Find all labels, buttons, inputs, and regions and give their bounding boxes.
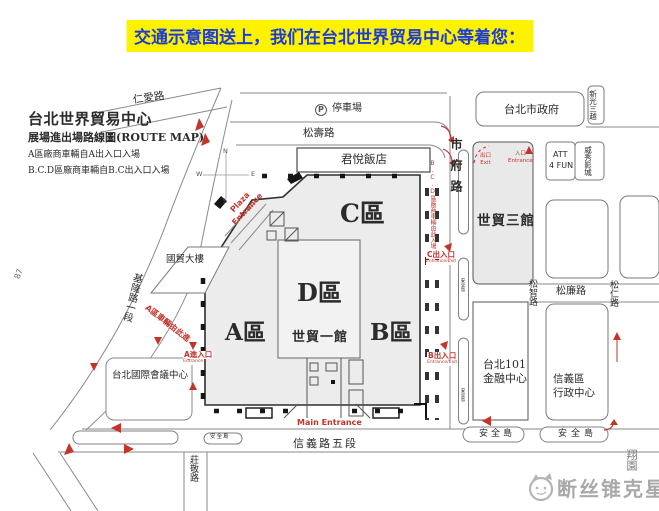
- hall3-entrance-label: 入口 Entrance: [508, 151, 533, 165]
- map-note-bcd: B.C.D區廠商車輛自B.C出入口入場: [28, 167, 169, 176]
- itb-label: 國貿大樓: [166, 255, 204, 265]
- zone-d-label: D區: [297, 281, 342, 305]
- hyatt-label: 君悅飯店: [341, 154, 387, 166]
- ticc-block: [106, 358, 192, 420]
- compass-icon: [203, 152, 249, 198]
- road-label-songzhi: 松智路: [527, 279, 536, 306]
- hall1-label: 世貿一館: [292, 331, 348, 344]
- parking-label: 停車場: [332, 104, 362, 114]
- block-east-2: [620, 196, 659, 278]
- watermark-logo-icon: [530, 473, 552, 500]
- admin-label-line1: 信義區: [553, 374, 585, 385]
- road-label-songlian: 松廉路: [556, 287, 586, 297]
- att-label-line2: 4 FUN: [549, 162, 573, 170]
- road-label-shifu: 市府路: [450, 138, 462, 201]
- parking-icon-letter: P: [318, 106, 324, 114]
- vieshow-label: 威秀影城: [584, 146, 592, 176]
- road-label-songren: 松仁路: [608, 280, 617, 307]
- island-label-1: 安全島: [479, 430, 515, 439]
- zone-b-label: B區: [370, 321, 412, 344]
- headline-banner: 交通示意图送上，我们在台北世界贸易中心等着您：: [126, 20, 533, 52]
- gate-b-exit: B出入口: [427, 352, 457, 360]
- gate-c-exit: C出入口: [426, 251, 456, 259]
- compass-s: S: [223, 198, 227, 205]
- gate-a-entrance: A進入口: [183, 351, 213, 359]
- gate-b-exit-sub: Entrance/Exit: [427, 361, 457, 366]
- att-label-line1: ATT: [553, 151, 567, 159]
- cityhall-label: 台北市政府: [504, 104, 559, 115]
- taipei101-label-line1: 台北101: [483, 359, 526, 370]
- map-note-a: A區廠商車輛自A出入口入場: [28, 151, 140, 160]
- corner-vertical-label: 翔園: [626, 449, 637, 471]
- map-subtitle: 展場進出場路線圖(ROUTE MAP): [28, 132, 204, 143]
- hall3-exit-en: Exit: [480, 160, 490, 166]
- road-label-xinyi: 信義路五段: [293, 438, 358, 449]
- gate-a-entrance-sub: Entrance: [183, 360, 203, 365]
- map-title: 台北世界貿易中心: [28, 112, 152, 127]
- route-note-bcd: B.C.D區廠商車輛由此入場: [429, 160, 435, 249]
- skm-label: 新光三越: [589, 90, 597, 120]
- compass-n: N: [223, 148, 228, 155]
- hall3-entrance-en: Entrance: [508, 158, 533, 164]
- route-map-screenshot: 交通示意图送上，我们在台北世界贸易中心等着您： 仁愛路 台北世界貿易中心 展場進…: [0, 0, 659, 511]
- gate-c-exit-sub: Entrance/Exit: [426, 260, 456, 265]
- admin-block: [546, 304, 608, 420]
- zone-a-label: A區: [225, 321, 266, 344]
- island-label-median-1: 安全島: [460, 278, 465, 292]
- zone-c-label: C區: [340, 201, 385, 226]
- island-label-small: 安全島: [210, 435, 230, 441]
- island-label-2: 安全島: [558, 430, 597, 439]
- compass-e: E: [251, 171, 255, 178]
- hall3-exit-cn: 出口: [480, 153, 491, 159]
- block-east-1: [546, 200, 608, 278]
- main-entrance-label: Main Entrance: [297, 419, 362, 427]
- hall3-entrance-cn: 入口: [515, 151, 526, 157]
- ticc-label: 台北國際會議中心: [112, 371, 188, 381]
- hall3-exit-label: 出口 Exit: [480, 153, 491, 167]
- road-label-zhuangjing: 莊敬路: [188, 455, 197, 482]
- watermark-text: 断丝锥克星: [557, 479, 659, 499]
- taipei101-label-line2: 金融中心: [483, 373, 527, 384]
- island-label-median-2: 安全島: [460, 388, 465, 402]
- compass-w: W: [196, 171, 202, 178]
- admin-label-line2: 行政中心: [553, 388, 595, 399]
- hall3-label: 世貿三館: [477, 215, 535, 229]
- road-label-songshou: 松壽路: [303, 128, 335, 139]
